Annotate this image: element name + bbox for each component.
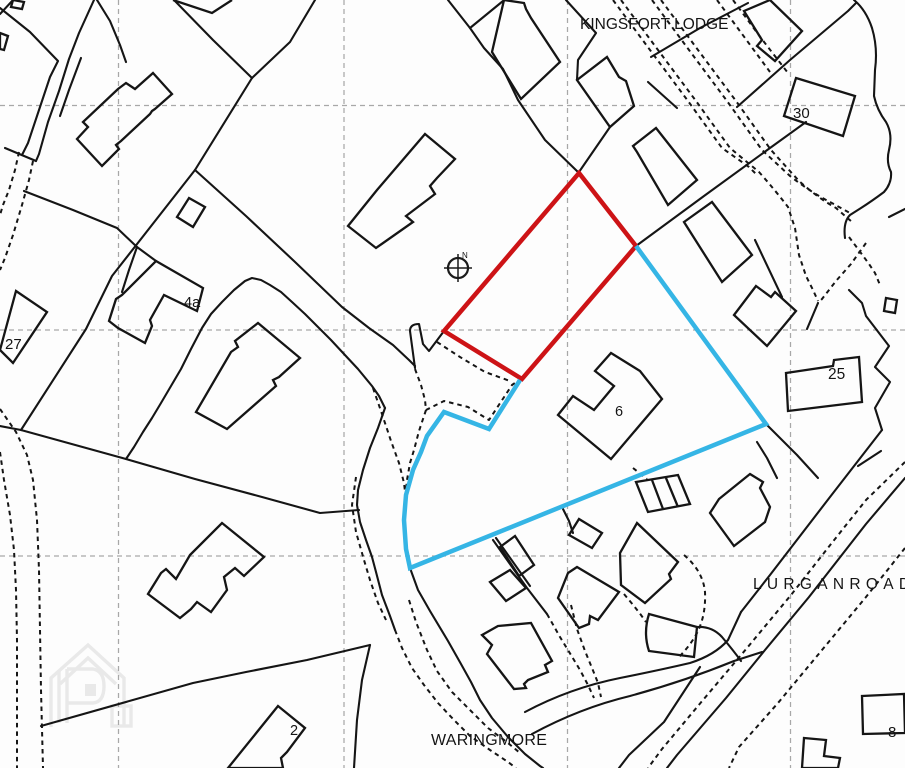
svg-text:27: 27	[5, 336, 22, 353]
svg-text:30: 30	[793, 105, 810, 122]
svg-text:N: N	[462, 251, 468, 260]
svg-text:4a: 4a	[184, 295, 201, 311]
svg-text:WARINGMORE: WARINGMORE	[431, 732, 547, 749]
svg-text:8: 8	[888, 724, 896, 741]
svg-text:6: 6	[615, 404, 623, 420]
svg-text:2: 2	[290, 723, 298, 739]
svg-text:KINGSFORT LODGE: KINGSFORT LODGE	[580, 16, 728, 33]
svg-text:LURGANROAD: LURGANROAD	[753, 576, 905, 593]
svg-text:25: 25	[828, 366, 845, 383]
